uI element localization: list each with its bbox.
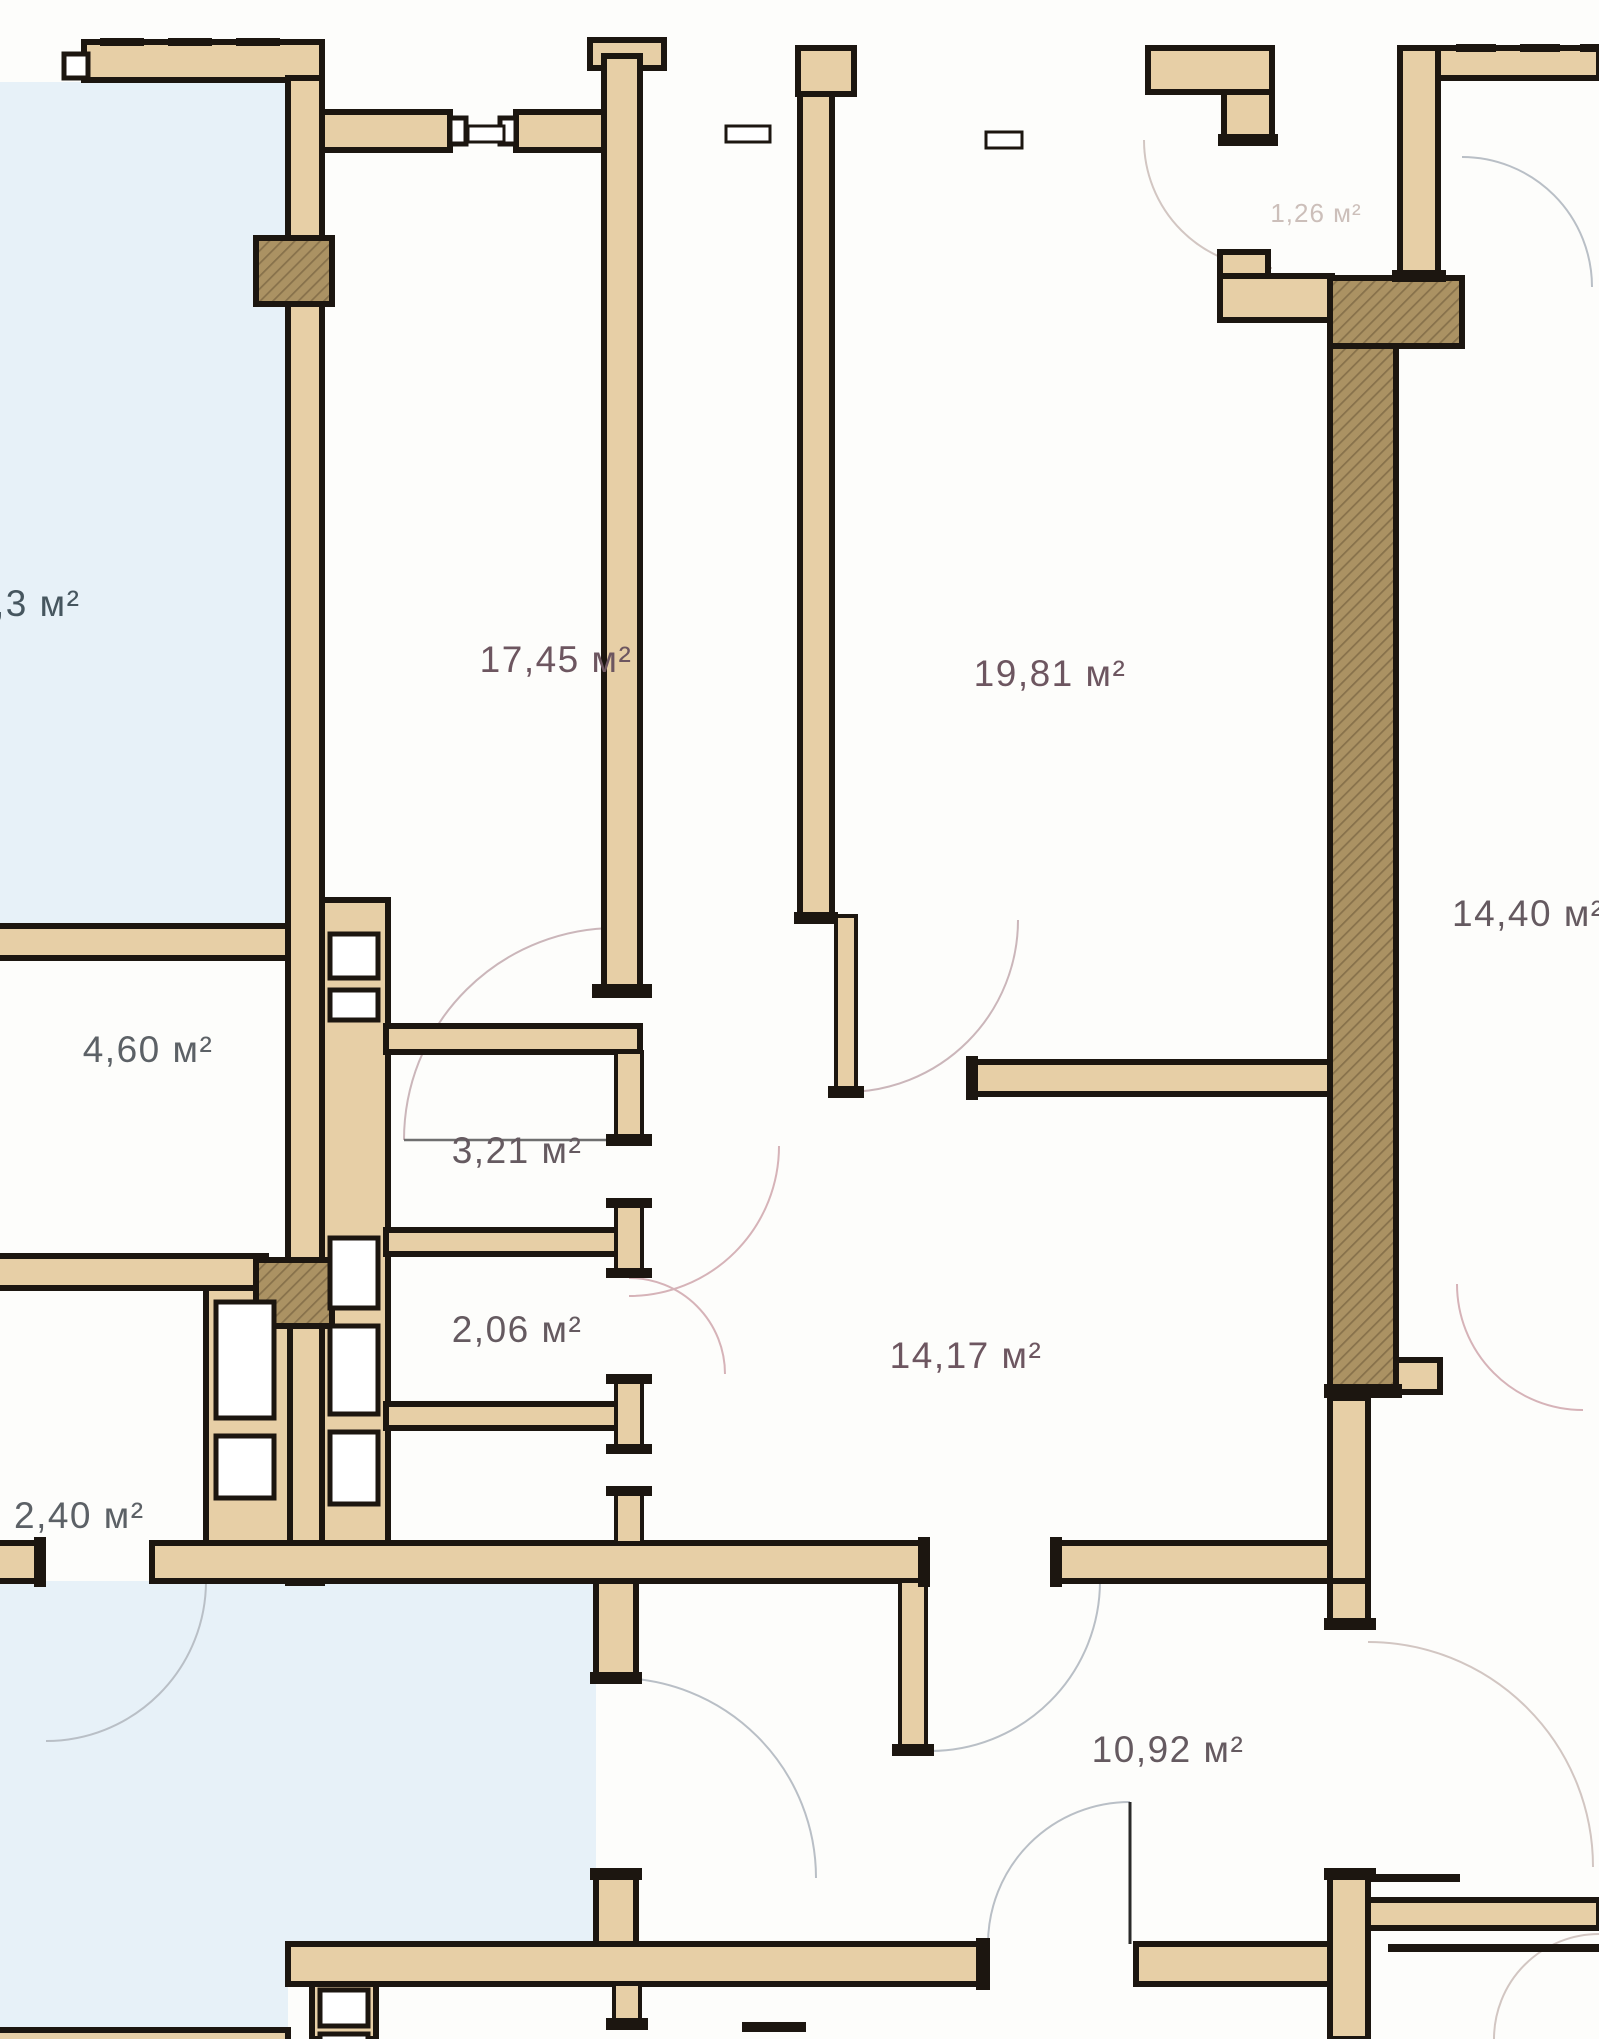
cap-neighbor-wall-upper	[590, 1672, 642, 1684]
door-arc-bottom-right	[1368, 1642, 1593, 1867]
duct-box-1	[330, 934, 378, 978]
wall-room-4-60-bottom	[0, 1256, 266, 1288]
cap-wall-19-81	[794, 912, 838, 924]
window-dash-top-2	[168, 38, 212, 46]
room-label-neighbor-left: ,3 м²	[0, 583, 80, 624]
wall-room-2-06-bottom	[386, 1404, 640, 1428]
column-top-left	[256, 238, 332, 304]
room-label-4-60: 4,60 м²	[83, 1029, 214, 1070]
duct-box-5	[330, 1432, 378, 1504]
room-label-14-17: 14,17 м²	[890, 1335, 1043, 1376]
cap-column-bottom	[1324, 1384, 1402, 1398]
column-right-cap	[1330, 278, 1462, 346]
cap-divider-bottom	[606, 1268, 652, 1278]
room-label-10-92: 10,92 м²	[1092, 1729, 1245, 1770]
wall-fragment-bottom	[742, 2022, 806, 2032]
cap-top-right-wall	[1392, 270, 1446, 282]
door-arc-entry-1-26	[1144, 140, 1272, 268]
door-arc-hallway-to-corridor	[930, 1581, 1100, 1751]
door-arc-room-2-06	[629, 1278, 725, 1374]
room-label-2-40: 2,40 м²	[14, 1495, 145, 1536]
wall-door-jamb-19-81	[836, 916, 856, 1094]
window-dash-top-right-3	[1580, 44, 1599, 52]
window-dash-top-3	[236, 38, 280, 46]
duct-box-2	[330, 990, 378, 1020]
window-dash-top-1	[100, 38, 144, 46]
wall-corridor-top	[1058, 1543, 1330, 1581]
cap-neighbor-wall-lower	[590, 1868, 642, 1880]
wall-end-niche-3	[64, 54, 88, 78]
wall-neighbor-right-lower	[596, 1876, 636, 1944]
duct-box-8	[320, 1990, 368, 2026]
wall-middle-vertical	[604, 56, 640, 992]
cap-bottom-stub	[606, 2018, 648, 2030]
door-arc-corridor-bottom	[988, 1802, 1130, 1944]
cap-long-wall-left-stub	[34, 1537, 46, 1587]
wall-line-bottom-right-upper	[1368, 1874, 1460, 1882]
structural-columns	[256, 238, 1462, 1392]
wall-stub-below-long-wall	[900, 1581, 926, 1751]
wall-room-3-21-top	[386, 1026, 640, 1052]
duct-box-7	[216, 1436, 274, 1498]
duct-box-9	[320, 2034, 368, 2039]
door-arc-room-14-40	[1457, 1284, 1583, 1410]
wall-bottom-right-beam	[1368, 1900, 1599, 1928]
wall-top-left-beam	[84, 42, 322, 80]
cap-jamb-2-06-bottom	[606, 1444, 652, 1454]
wall-bottom-right-of-door	[1136, 1944, 1330, 1984]
wall-entry-jamb-top	[1148, 48, 1272, 92]
wall-top-right-beam	[1438, 48, 1599, 78]
wall-top-right-vertical	[1400, 48, 1438, 278]
cap-divider-top	[606, 1198, 652, 1208]
wall-room-19-81-top-beam	[798, 48, 854, 94]
wall-neighbor-right-upper	[596, 1581, 636, 1680]
column-right-wall	[1330, 346, 1396, 1392]
duct-box-4	[330, 1326, 378, 1414]
room-label-14-40: 14,40 м²	[1452, 893, 1599, 934]
wall-top-stub	[322, 112, 450, 150]
neighbor-area-top-left	[0, 82, 288, 926]
room-label-19-81: 19,81 м²	[974, 653, 1127, 694]
wall-room-19-81-bottom	[974, 1062, 1336, 1094]
room-label-3-21: 3,21 м²	[452, 1130, 583, 1171]
window-dash-1	[468, 126, 504, 142]
cap-jamb-3-21	[606, 1134, 652, 1146]
cap-long-wall-right	[918, 1537, 930, 1587]
wall-jamb-divider	[616, 1204, 642, 1276]
door-arc-top-right	[1462, 157, 1592, 287]
window-dash-top-right-1	[1456, 44, 1496, 52]
cap-jamb-2-06-top	[606, 1374, 652, 1384]
duct-box-6	[216, 1302, 274, 1418]
wall-jamb-2-06	[616, 1380, 642, 1452]
wall-middle-beam	[516, 112, 604, 150]
room-label-2-06: 2,06 м²	[452, 1309, 583, 1350]
cap-corridor-wall-left	[1050, 1537, 1062, 1587]
cap-stub-below-long-wall	[892, 1744, 934, 1756]
wall-jog-lower	[1220, 276, 1332, 320]
cap-segment-2-06	[606, 1486, 652, 1496]
door-arc-neighbor-bottom	[616, 1678, 816, 1878]
wall-stub-right-of-column	[1396, 1360, 1440, 1392]
wall-long-horizontal	[152, 1543, 926, 1581]
wall-right-vertical-bottom	[1330, 1876, 1368, 2039]
duct-box-3	[330, 1238, 378, 1308]
wall-right-vertical-mid	[1330, 1398, 1368, 1581]
cap-right-stub-upper	[1324, 1618, 1376, 1630]
room-label-1-26: 1,26 м²	[1270, 198, 1361, 228]
wall-divider-3-21-2-06	[386, 1230, 640, 1254]
wall-entry-jamb-drop	[1224, 92, 1272, 140]
wall-bottom-main	[288, 1944, 980, 1984]
window-dash-2	[726, 126, 770, 142]
wall-room-19-81-left	[800, 94, 832, 920]
wall-room-4-60-top	[0, 926, 288, 958]
cap-bottom-main-wall	[976, 1938, 990, 1990]
wall-bottom-left-strip	[0, 2030, 288, 2039]
wall-segment-right-of-2-06	[616, 1494, 642, 1543]
room-label-17-45: 17,45 м²	[480, 639, 633, 680]
window-dash-3	[986, 132, 1022, 148]
cap-entry-jamb	[1218, 134, 1278, 146]
wall-line-bottom-right-lower	[1388, 1944, 1599, 1952]
window-dash-top-right-2	[1520, 44, 1560, 52]
cap-wall-19-81-bottom-left	[966, 1056, 978, 1100]
wall-end-niche-1	[450, 118, 466, 144]
wall-jamb-3-21	[616, 1052, 642, 1140]
cap-jamb-19-81	[828, 1086, 864, 1098]
cap-middle-wall	[592, 984, 652, 998]
floor-plan: ,3 м² 17,45 м² 19,81 м² 1,26 м² 14,40 м²…	[0, 0, 1599, 2039]
